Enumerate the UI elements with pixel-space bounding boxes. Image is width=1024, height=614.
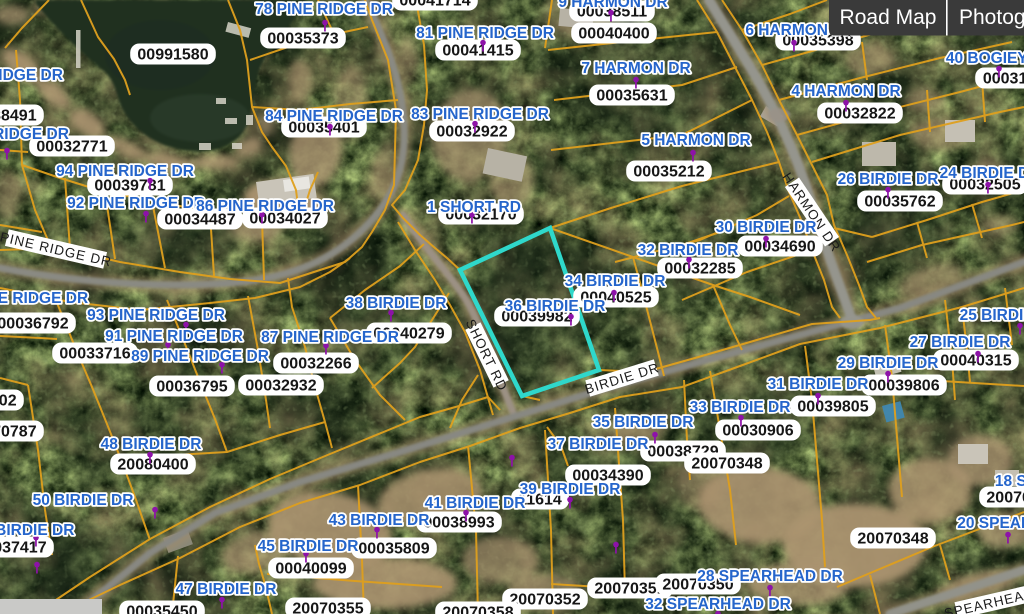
svg-text:00039781: 00039781: [94, 178, 165, 195]
svg-text:25 BIRDIE DR: 25 BIRDIE DR: [960, 307, 1024, 324]
svg-text:00041415: 00041415: [442, 43, 513, 60]
svg-text:48 BIRDIE DR: 48 BIRDIE DR: [101, 436, 202, 453]
svg-text:RIDGE DR: RIDGE DR: [0, 67, 63, 84]
svg-text:30 BIRDIE DR: 30 BIRDIE DR: [716, 219, 817, 236]
svg-text:41 BIRDIE DR: 41 BIRDIE DR: [425, 495, 526, 512]
svg-text:00032932: 00032932: [245, 378, 316, 395]
svg-text:31 BIRDIE DR: 31 BIRDIE DR: [768, 376, 869, 393]
svg-text:20070352: 20070352: [509, 592, 580, 609]
svg-text:00041714: 00041714: [399, 0, 470, 10]
svg-text:24 BIRDIE DR: 24 BIRDIE DR: [940, 165, 1024, 182]
svg-text:00033716: 00033716: [59, 346, 130, 363]
svg-text:27 BIRDIE DR: 27 BIRDIE DR: [910, 334, 1011, 351]
svg-text:94 PINE RIDGE DR: 94 PINE RIDGE DR: [56, 163, 194, 180]
svg-text:89 PINE RIDGE DR: 89 PINE RIDGE DR: [131, 348, 269, 365]
svg-text:00037417: 00037417: [0, 540, 47, 557]
svg-text:Photograph: Photograph: [959, 6, 1024, 29]
svg-text:00039805: 00039805: [797, 399, 868, 416]
svg-text:87 PINE RIDGE DR: 87 PINE RIDGE DR: [261, 329, 399, 346]
svg-text:00030906: 00030906: [722, 423, 793, 440]
svg-text:Road Map: Road Map: [840, 6, 937, 29]
svg-text:45 BIRDIE DR: 45 BIRDIE DR: [258, 538, 359, 555]
svg-text:00991580: 00991580: [137, 47, 208, 64]
svg-text:52 BIRDIE DR: 52 BIRDIE DR: [0, 522, 74, 539]
svg-text:33 BIRDIE DR: 33 BIRDIE DR: [690, 399, 791, 416]
svg-text:00032922: 00032922: [436, 124, 507, 141]
svg-text:20080400: 20080400: [117, 457, 188, 474]
svg-text:00032266: 00032266: [280, 356, 351, 373]
svg-text:34 BIRDIE DR: 34 BIRDIE DR: [565, 273, 666, 290]
svg-text:28 SPEARHEAD DR: 28 SPEARHEAD DR: [697, 568, 843, 585]
svg-text:PINE RIDGE DR: PINE RIDGE DR: [0, 290, 88, 307]
svg-text:20070348: 20070348: [857, 531, 928, 548]
svg-text:RIDGE DR: RIDGE DR: [0, 126, 69, 143]
svg-text:00038993: 00038993: [423, 515, 494, 532]
svg-text:26 BIRDIE DR: 26 BIRDIE DR: [838, 171, 939, 188]
svg-text:20070351: 20070351: [594, 581, 665, 598]
svg-text:37 BIRDIE DR: 37 BIRDIE DR: [548, 436, 649, 453]
svg-text:20070349: 20070349: [986, 490, 1024, 507]
svg-text:93 PINE RIDGE DR: 93 PINE RIDGE DR: [87, 307, 225, 324]
svg-text:4 HARMON DR: 4 HARMON DR: [791, 83, 900, 100]
svg-text:78 PINE RIDGE DR: 78 PINE RIDGE DR: [255, 1, 393, 18]
svg-text:36 BIRDIE DR: 36 BIRDIE DR: [505, 298, 606, 315]
svg-text:00035373: 00035373: [267, 31, 338, 48]
svg-text:91 PINE RIDGE DR: 91 PINE RIDGE DR: [105, 328, 243, 345]
svg-text:9 HARMON DR: 9 HARMON DR: [558, 0, 667, 11]
svg-text:83 PINE RIDGE DR: 83 PINE RIDGE DR: [411, 106, 549, 123]
svg-text:00040400: 00040400: [578, 26, 649, 43]
svg-text:00035450: 00035450: [126, 604, 197, 614]
svg-text:00039806: 00039806: [868, 378, 939, 395]
svg-text:00036795: 00036795: [156, 379, 227, 396]
svg-text:00035762: 00035762: [864, 194, 935, 211]
svg-text:35 BIRDIE DR: 35 BIRDIE DR: [593, 414, 694, 431]
svg-text:38 BIRDIE DR: 38 BIRDIE DR: [346, 295, 447, 312]
svg-text:40 BOGIEY DR: 40 BOGIEY DR: [946, 50, 1024, 67]
svg-text:50 BIRDIE DR: 50 BIRDIE DR: [33, 492, 134, 509]
svg-text:18 SP: 18 SP: [995, 473, 1024, 490]
svg-text:32 BIRDIE DR: 32 BIRDIE DR: [638, 242, 739, 259]
svg-text:00035212: 00035212: [633, 164, 704, 181]
svg-text:00040099: 00040099: [275, 561, 346, 578]
svg-text:20070787: 20070787: [0, 424, 37, 441]
svg-text:00035809: 00035809: [358, 541, 429, 558]
svg-text:20070348: 20070348: [691, 456, 762, 473]
svg-text:00032285: 00032285: [664, 261, 735, 278]
svg-text:7 HARMON DR: 7 HARMON DR: [581, 60, 690, 77]
svg-text:92 PINE RIDGE DR: 92 PINE RIDGE DR: [67, 195, 205, 212]
svg-text:00038491: 00038491: [0, 108, 37, 125]
svg-text:5 HARMON DR: 5 HARMON DR: [641, 132, 750, 149]
svg-text:00031143: 00031143: [983, 71, 1024, 88]
svg-text:32 SPEARHEAD DR: 32 SPEARHEAD DR: [645, 596, 791, 613]
svg-text:00032822: 00032822: [824, 106, 895, 123]
svg-text:20070358: 20070358: [442, 605, 513, 614]
svg-text:00034690: 00034690: [744, 239, 815, 256]
svg-text:43 BIRDIE DR: 43 BIRDIE DR: [329, 512, 430, 529]
svg-text:00036792: 00036792: [0, 316, 69, 333]
svg-text:47 BIRDIE DR: 47 BIRDIE DR: [176, 581, 277, 598]
svg-text:84 PINE RIDGE DR: 84 PINE RIDGE DR: [265, 108, 403, 125]
svg-text:1 SHORT RD: 1 SHORT RD: [427, 199, 521, 216]
svg-text:81 PINE RIDGE DR: 81 PINE RIDGE DR: [416, 25, 554, 42]
svg-text:20070355: 20070355: [292, 601, 363, 614]
svg-text:20070302: 20070302: [0, 393, 17, 410]
svg-text:00035631: 00035631: [596, 88, 667, 105]
svg-text:86 PINE RIDGE DR: 86 PINE RIDGE DR: [196, 198, 334, 215]
svg-text:29 BIRDIE DR: 29 BIRDIE DR: [838, 355, 939, 372]
svg-text:20 SPEARHEAD DR: 20 SPEARHEAD DR: [957, 515, 1024, 532]
svg-text:39 BIRDIE DR: 39 BIRDIE DR: [520, 481, 621, 498]
